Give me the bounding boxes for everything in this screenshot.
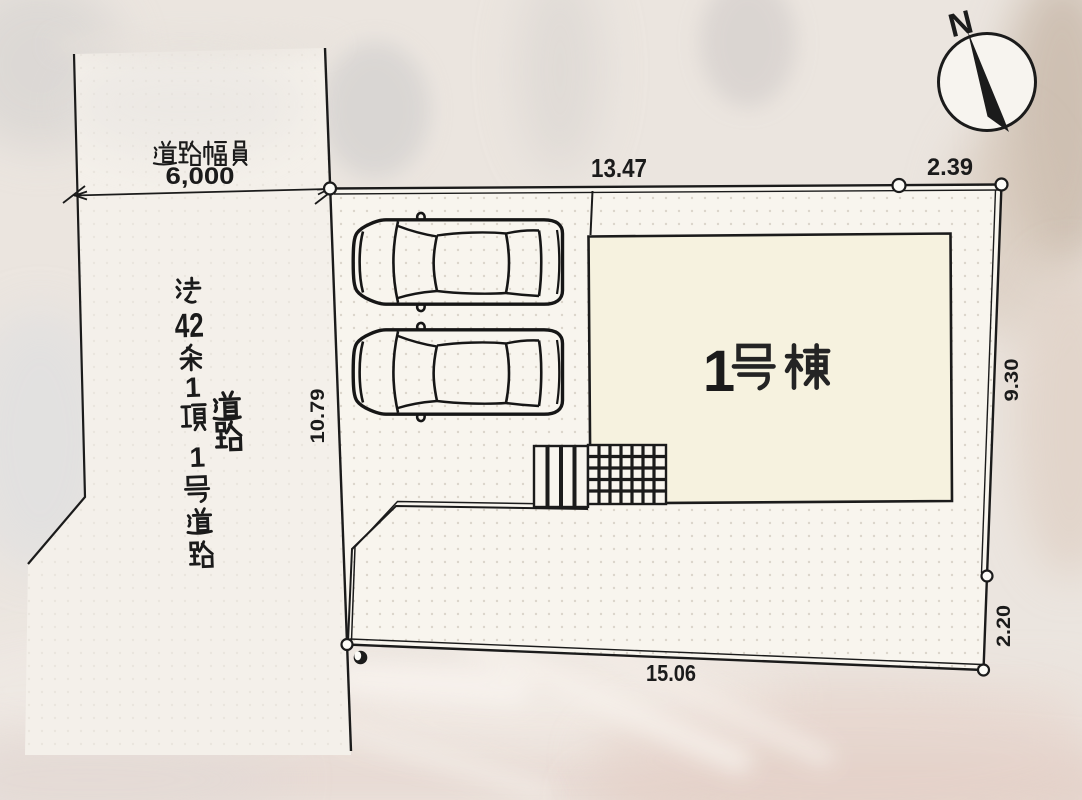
svg-text:10.79: 10.79	[308, 389, 329, 444]
svg-text:9.30: 9.30	[1002, 359, 1023, 402]
svg-text:6,000: 6,000	[166, 163, 235, 190]
svg-text:1: 1	[189, 442, 206, 474]
svg-text:15.06: 15.06	[646, 660, 696, 686]
svg-text:42: 42	[174, 306, 204, 345]
svg-text:1: 1	[703, 339, 735, 404]
svg-text:13.47: 13.47	[591, 153, 647, 183]
svg-text:2.39: 2.39	[927, 154, 973, 181]
svg-text:1: 1	[185, 372, 202, 404]
svg-text:2.20: 2.20	[994, 605, 1015, 647]
